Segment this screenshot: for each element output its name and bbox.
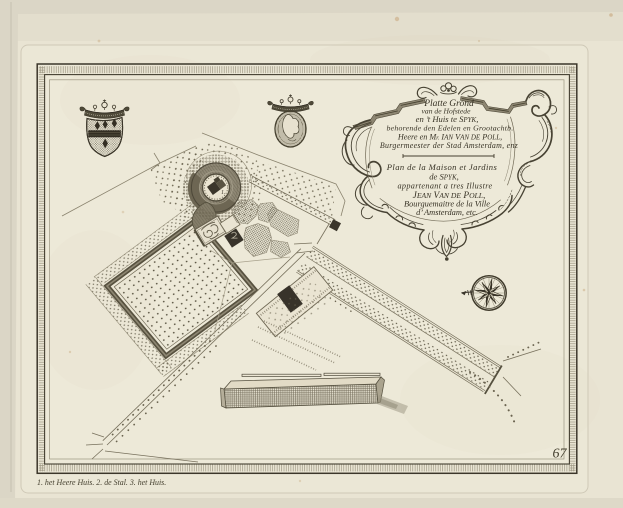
svg-text:en ’t Huis te SPYK,: en ’t Huis te SPYK, <box>416 114 479 124</box>
svg-text:de SPYK,: de SPYK, <box>429 172 459 182</box>
svg-text:Burgermeester der Stad Amsterd: Burgermeester der Stad Amsterdam, enz <box>380 141 518 150</box>
svg-text:d’ Amsterdam, etc.: d’ Amsterdam, etc. <box>416 208 478 217</box>
svg-text:behorende den Edelen en Groota: behorende den Edelen en Grootachtb. <box>386 124 513 133</box>
svg-text:1.: 1. <box>221 190 226 196</box>
svg-text:1. het Heere Huis. 2. de Stal.: 1. het Heere Huis. 2. de Stal. 3. het Hu… <box>37 478 166 487</box>
svg-text:Plan de la Maison et Jardins: Plan de la Maison et Jardins <box>386 162 498 172</box>
svg-text:67: 67 <box>553 447 568 462</box>
svg-text:appartenant a tres Illustre: appartenant a tres Illustre <box>397 182 492 191</box>
